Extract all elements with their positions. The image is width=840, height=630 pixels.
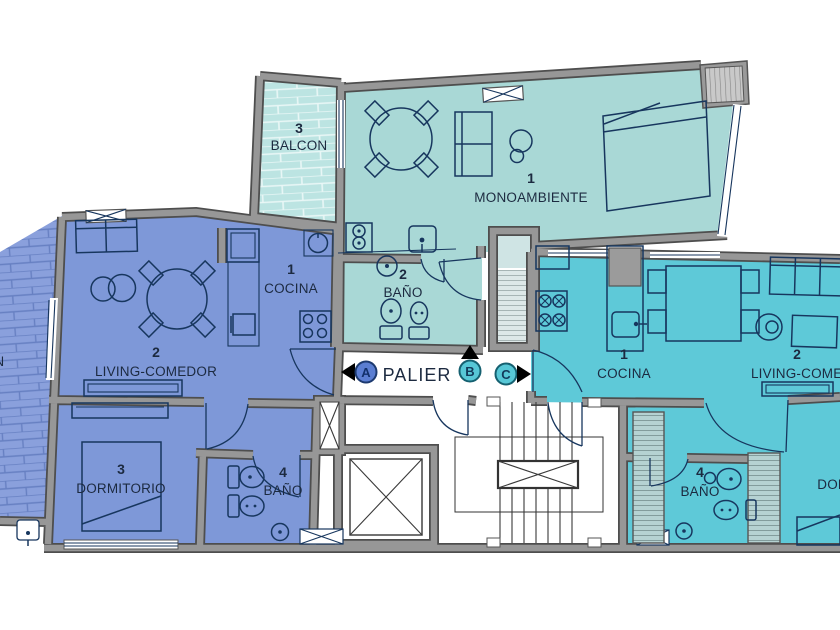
window-symbol	[483, 86, 524, 102]
left-dorm-label: DORMITORIO	[76, 481, 166, 496]
balcony-door-glazing	[337, 100, 345, 168]
right-living-number: 2	[793, 346, 801, 362]
right-bath-number: 4	[696, 464, 704, 480]
door-arc	[433, 400, 468, 435]
left-bath-label: BAÑO	[263, 483, 302, 498]
entrance-marker-c: C	[496, 364, 532, 385]
mono-bath-number: 2	[399, 266, 407, 282]
left-cocina-number: 1	[287, 261, 295, 277]
ac-unit-symbol	[17, 520, 39, 546]
entrance-marker-a: A	[341, 362, 377, 383]
right-bath-label: BAÑO	[680, 484, 719, 499]
arrow-right-icon	[517, 365, 531, 383]
right-dorm-label: DORMITORIO	[817, 477, 840, 492]
monoambiente-number: 1	[527, 170, 535, 186]
vent-shaft-symbol	[320, 402, 339, 449]
left-dorm-number: 3	[117, 461, 125, 477]
door-arc	[548, 402, 582, 446]
monoambiente-label: MONOAMBIENTE	[474, 190, 587, 205]
right-cocina-label: COCINA	[597, 366, 651, 381]
palier-label: PALIER	[383, 365, 452, 385]
right-living-label: LIVING-COMEDOR	[751, 366, 840, 381]
left-balcony-label: BALCON	[0, 354, 4, 369]
balcony-label: BALCON	[271, 138, 328, 153]
corner-column-hatch	[705, 66, 744, 103]
right-cocina-number: 1	[620, 346, 628, 362]
mono-bath-label: BAÑO	[383, 285, 422, 300]
left-cocina-label: COCINA	[264, 281, 318, 296]
stairs-symbol	[455, 397, 603, 547]
elevator-symbol	[350, 459, 422, 535]
floorplan-drawing: A B C 3 BALCON 1 MONOAMBIENTE 2 BAÑO BAL…	[0, 0, 840, 630]
wardrobe-symbol	[633, 412, 664, 543]
bath-vent	[300, 529, 343, 544]
left-living-number: 2	[152, 344, 160, 360]
marker-a-letter: A	[361, 365, 371, 380]
left-bath-number: 4	[279, 464, 287, 480]
bedroom-window	[64, 540, 178, 549]
marker-b-letter: B	[465, 364, 474, 379]
marker-c-letter: C	[501, 367, 511, 382]
balcony-number: 3	[295, 120, 303, 136]
left-living-label: LIVING-COMEDOR	[95, 364, 217, 379]
wardrobe-symbol	[748, 453, 780, 543]
floorplan-page: A B C 3 BALCON 1 MONOAMBIENTE 2 BAÑO BAL…	[0, 0, 840, 630]
